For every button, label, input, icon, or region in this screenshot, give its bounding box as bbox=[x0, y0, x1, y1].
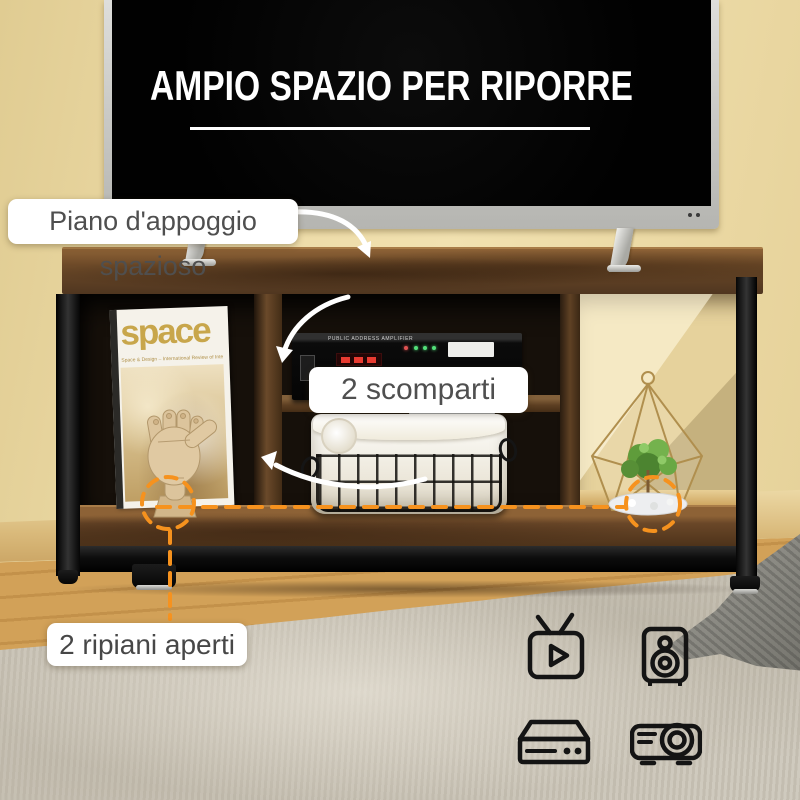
tv-icon bbox=[524, 612, 588, 682]
leg-foot-pad bbox=[136, 585, 172, 590]
magazine-subtitle: Space & Design – International Review of… bbox=[121, 354, 223, 364]
amplifier-label: PUBLIC ADDRESS AMPLIFIER bbox=[328, 336, 448, 342]
tv bbox=[104, 0, 719, 229]
amplifier-led bbox=[404, 346, 408, 350]
rolled-towel bbox=[321, 418, 357, 454]
amplifier-led bbox=[423, 346, 427, 350]
tv-indicator-led bbox=[688, 213, 692, 217]
amplifier-led bbox=[432, 346, 436, 350]
callout-open-shelves: 2 ripiani aperti bbox=[47, 623, 247, 666]
product-photo-tv-stand: AMPIO SPAZIO PER RIPORRE space Space & D… bbox=[0, 0, 800, 800]
callout-top-surface: Piano d'appoggio spazioso bbox=[8, 199, 298, 244]
callout-compartments: 2 scomparti bbox=[309, 367, 528, 413]
amplifier-display bbox=[336, 353, 382, 366]
wood-divider bbox=[560, 294, 580, 507]
wood-divider bbox=[254, 294, 282, 507]
terrarium-decor bbox=[582, 370, 710, 528]
speaker-icon bbox=[640, 626, 690, 686]
wooden-hand-mannequin bbox=[118, 390, 233, 520]
metal-frame-leg bbox=[56, 294, 80, 576]
projector-icon bbox=[630, 714, 702, 768]
amplifier-badge bbox=[448, 342, 494, 357]
banner-underline bbox=[190, 127, 590, 130]
storage-basket bbox=[311, 414, 507, 514]
metal-frame-leg bbox=[736, 277, 757, 583]
tv-indicator-led bbox=[696, 213, 700, 217]
banner-title: AMPIO SPAZIO PER RIPORRE bbox=[150, 62, 630, 110]
basket-wire-grid bbox=[316, 454, 502, 512]
media-player-icon bbox=[516, 718, 592, 766]
magazine-title: space bbox=[120, 312, 225, 351]
tv-leg-foot bbox=[607, 265, 641, 272]
leg-foot bbox=[58, 570, 78, 584]
amplifier-led bbox=[414, 346, 418, 350]
leg-foot-pad bbox=[733, 589, 758, 594]
